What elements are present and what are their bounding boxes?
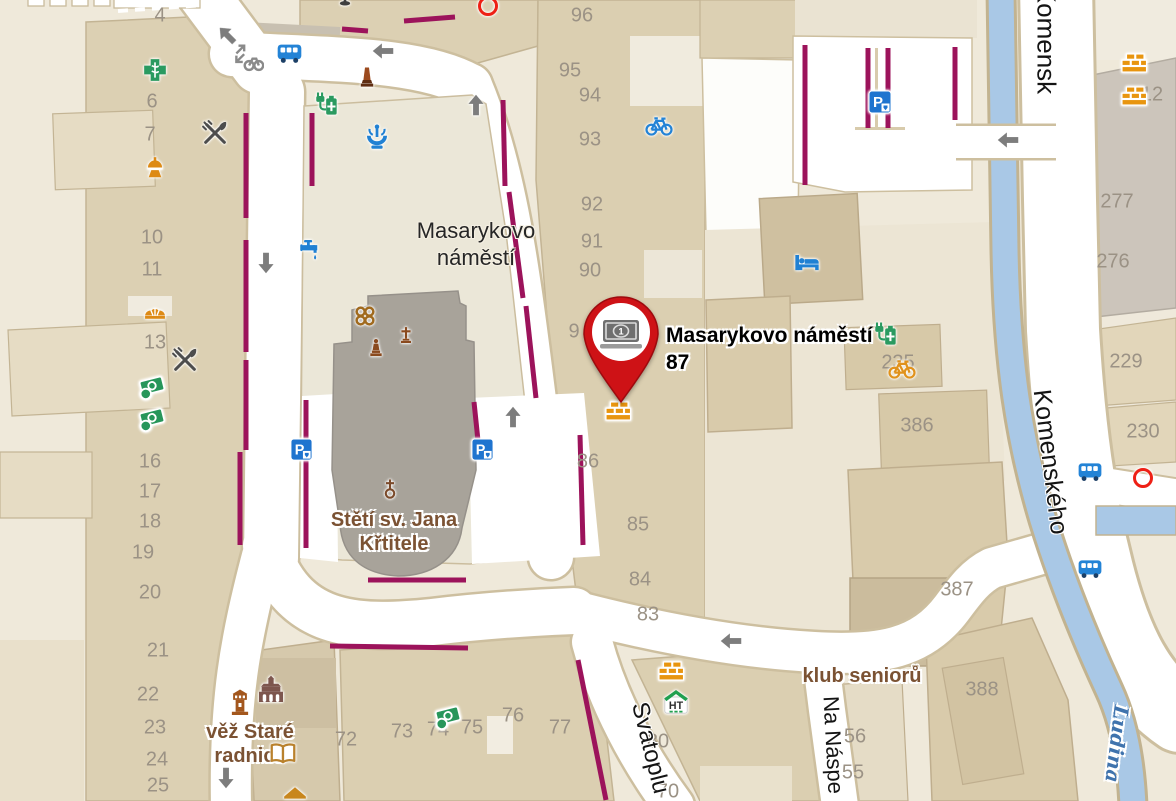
street-name-komenskeho-top: Komensk (1031, 0, 1062, 94)
lamp-icon[interactable] (142, 155, 168, 181)
selected-place-name: Masarykovo náměstí (666, 322, 873, 349)
bus-stop-icon[interactable] (1077, 458, 1103, 484)
direction-arrow-icon (253, 250, 279, 276)
house-number: 94 (579, 85, 601, 108)
house-number: 93 (579, 129, 601, 152)
house-number: 24 (146, 749, 168, 772)
library-icon[interactable] (268, 739, 298, 769)
square-name-line2: náměstí (417, 244, 536, 271)
house-number: 11 (142, 259, 163, 282)
house-number: 6 (146, 91, 157, 114)
drinking-water-icon[interactable] (297, 237, 323, 263)
restaurant-icon[interactable] (171, 346, 199, 374)
house-icon[interactable] (282, 784, 308, 801)
house-number: 86 (577, 451, 599, 474)
house-number: 91 (581, 231, 603, 254)
ev-charging-icon[interactable] (311, 89, 339, 117)
house-number: 276 (1096, 251, 1129, 274)
direction-arrow-icon (500, 404, 526, 430)
money-exchange-icon[interactable] (137, 404, 167, 434)
house-number: 77 (549, 717, 571, 740)
selected-place-number: 87 (666, 349, 873, 376)
house-number: 25 (147, 775, 169, 798)
parking-icon[interactable] (471, 438, 494, 461)
restaurant-icon[interactable] (201, 119, 229, 147)
house-number: 18 (139, 511, 161, 534)
statue-icon[interactable] (335, 0, 355, 15)
house-number: 73 (391, 721, 413, 744)
house-number: 20 (139, 582, 161, 605)
house-number: 230 (1126, 421, 1159, 444)
cross-icon[interactable] (396, 325, 416, 345)
money-exchange-icon[interactable] (433, 702, 463, 732)
tower-icon[interactable] (225, 688, 255, 718)
church-name-label: Stětí sv. Jana Křtitele (331, 508, 457, 556)
direction-arrow-icon (213, 765, 239, 791)
church-name-line1: Stětí sv. Jana (331, 508, 457, 532)
seniors-club-label: klub seniorů (803, 664, 922, 688)
street-name-na-naspech: Na Náspe (817, 695, 848, 794)
house-number: 386 (900, 415, 933, 438)
pin-banknote-value: 1 (618, 327, 624, 338)
pharmacy-icon[interactable] (142, 57, 168, 83)
direction-arrow-icon (463, 92, 489, 118)
house-number: 95 (559, 60, 581, 83)
house-number: 96 (571, 5, 593, 28)
house-number: 17 (139, 481, 161, 504)
house-number: 388 (965, 679, 998, 702)
town-hall-icon[interactable] (255, 674, 287, 706)
house-number: 85 (627, 514, 649, 537)
bicycle-icon[interactable] (645, 111, 673, 139)
house-number: 90 (579, 260, 601, 283)
house-number: 387 (940, 579, 973, 602)
house-number: 75 (461, 717, 483, 740)
house-number: 23 (144, 717, 166, 740)
house-number: 72 (335, 729, 357, 752)
direction-arrow-icon (995, 127, 1021, 153)
direction-arrow-icon (370, 38, 396, 64)
house-number: 13 (144, 332, 166, 355)
house-number: 92 (581, 194, 603, 217)
cycle-route-icon (230, 40, 264, 74)
house-number: 56 (844, 726, 866, 749)
church-name-line2: Křtitele (331, 532, 457, 556)
transit-stop-icon[interactable] (476, 0, 500, 18)
fountain-icon[interactable] (362, 122, 392, 152)
square-name-label: Masarykovo náměstí (417, 217, 536, 271)
house-number: 19 (132, 542, 154, 565)
ht-house-icon[interactable] (661, 687, 691, 717)
bus-stop-icon[interactable] (1077, 555, 1103, 581)
bus-stop-icon[interactable] (276, 39, 303, 66)
ev-charging-icon[interactable] (870, 319, 898, 347)
parking-icon[interactable] (290, 438, 313, 461)
church-icon[interactable] (378, 477, 402, 501)
bakery-icon[interactable] (141, 298, 169, 326)
transit-stop-icon[interactable] (1131, 466, 1155, 490)
parking-icon[interactable] (868, 90, 892, 114)
banknote-icon: 1 (600, 320, 642, 349)
map-canvas[interactable]: P HT (0, 0, 1176, 801)
house-number: 277 (1100, 191, 1133, 214)
house-number: 76 (502, 705, 524, 728)
house-number: 16 (139, 451, 161, 474)
map-pin[interactable]: 1 (576, 290, 666, 405)
money-exchange-icon[interactable] (137, 372, 167, 402)
house-number: 4 (154, 5, 165, 28)
construction-icon[interactable] (1118, 49, 1148, 79)
statue-icon[interactable] (365, 337, 387, 359)
house-number: 10 (141, 227, 163, 250)
house-number: 83 (637, 604, 659, 627)
construction-icon[interactable] (655, 657, 685, 687)
house-number: 229 (1109, 351, 1142, 374)
construction-icon[interactable] (1118, 82, 1148, 112)
monument-icon[interactable] (355, 65, 379, 89)
bicycle-icon[interactable] (888, 354, 916, 382)
sculpture-icon[interactable] (352, 303, 378, 329)
square-name-line1: Masarykovo (417, 217, 536, 244)
house-number: 22 (137, 684, 159, 707)
hotel-icon[interactable] (793, 248, 821, 276)
house-number: 7 (144, 124, 155, 147)
selected-place-label: Masarykovo náměstí 87 (666, 322, 873, 376)
direction-arrow-icon (718, 628, 744, 654)
house-number: 21 (147, 640, 169, 663)
house-number: 84 (629, 569, 651, 592)
